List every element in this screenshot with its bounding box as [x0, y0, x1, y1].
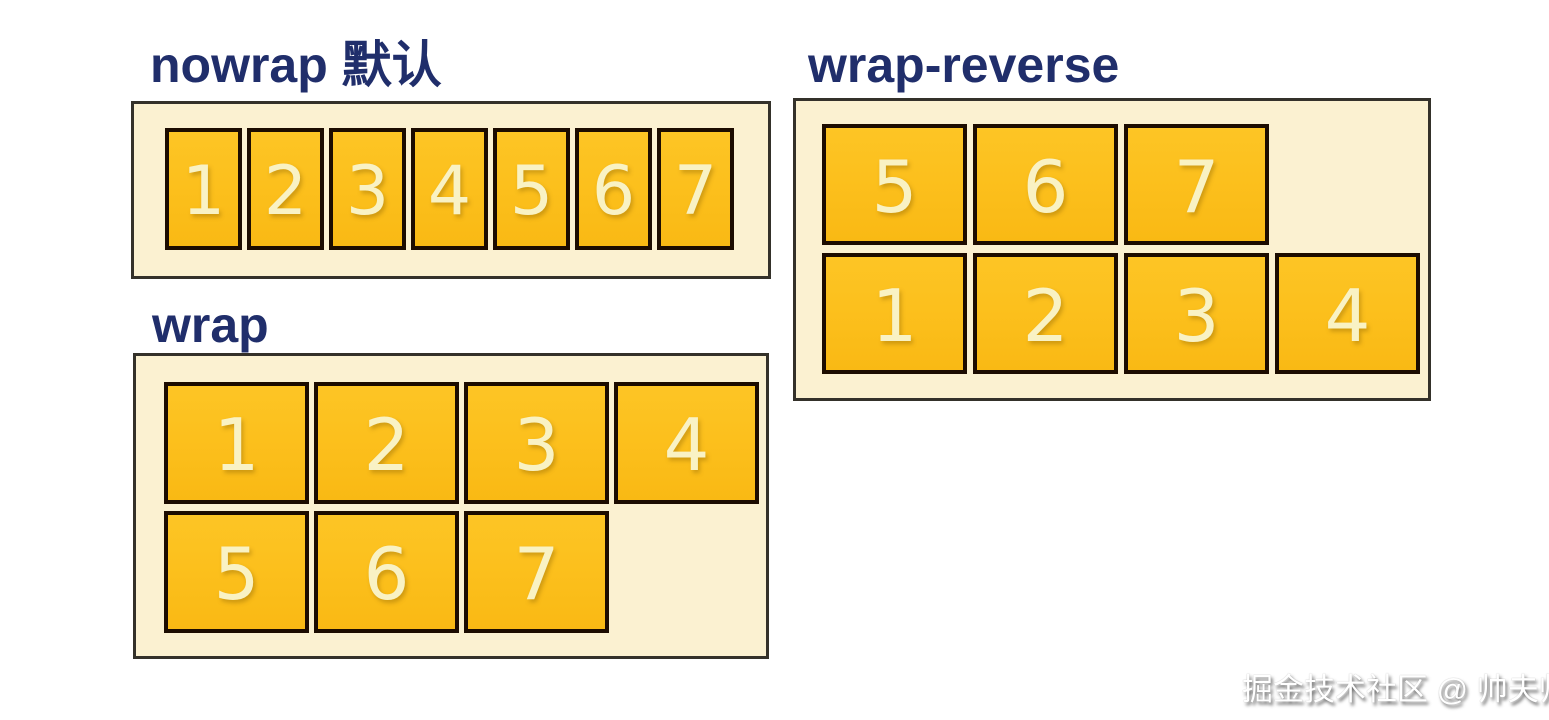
section-title-wrap: wrap [152, 298, 269, 353]
flex-item: 3 [1124, 253, 1269, 374]
flex-item: 1 [164, 382, 309, 504]
flex-row: 1 2 3 4 5 6 7 [165, 128, 768, 250]
flex-container-wrap-reverse: 5 6 7 1 2 3 4 [793, 98, 1431, 401]
flex-item: 7 [1124, 124, 1269, 245]
flex-item: 2 [247, 128, 324, 250]
flex-item: 1 [165, 128, 242, 250]
flex-item: 5 [164, 511, 309, 633]
flex-item: 7 [464, 511, 609, 633]
watermark: 掘金技术社区 @ 帅夫帅夫 [1242, 664, 1549, 709]
flex-container-wrap: 1 2 3 4 5 6 7 [133, 353, 769, 659]
flex-item: 5 [822, 124, 967, 245]
section-title-nowrap: nowrap 默认 [150, 38, 442, 93]
flex-container-nowrap: 1 2 3 4 5 6 7 [131, 101, 771, 279]
flex-item: 3 [329, 128, 406, 250]
flex-item: 6 [575, 128, 652, 250]
flex-row: 5 6 7 [164, 511, 766, 633]
flex-item: 7 [657, 128, 734, 250]
flex-item: 6 [314, 511, 459, 633]
flex-row: 5 6 7 [822, 124, 1428, 245]
flex-item: 4 [1275, 253, 1420, 374]
flex-wrap-diagram: nowrap 默认 1 2 3 4 5 6 7 wrap 1 2 3 4 5 6… [0, 0, 1549, 720]
flex-item: 3 [464, 382, 609, 504]
flex-item: 2 [973, 253, 1118, 374]
flex-row: 1 2 3 4 [822, 253, 1428, 374]
flex-item: 2 [314, 382, 459, 504]
flex-item: 4 [411, 128, 488, 250]
section-title-wrap-reverse: wrap-reverse [808, 38, 1119, 93]
flex-item: 5 [493, 128, 570, 250]
flex-item: 4 [614, 382, 759, 504]
flex-item: 6 [973, 124, 1118, 245]
flex-row: 1 2 3 4 [164, 382, 766, 504]
flex-item: 1 [822, 253, 967, 374]
